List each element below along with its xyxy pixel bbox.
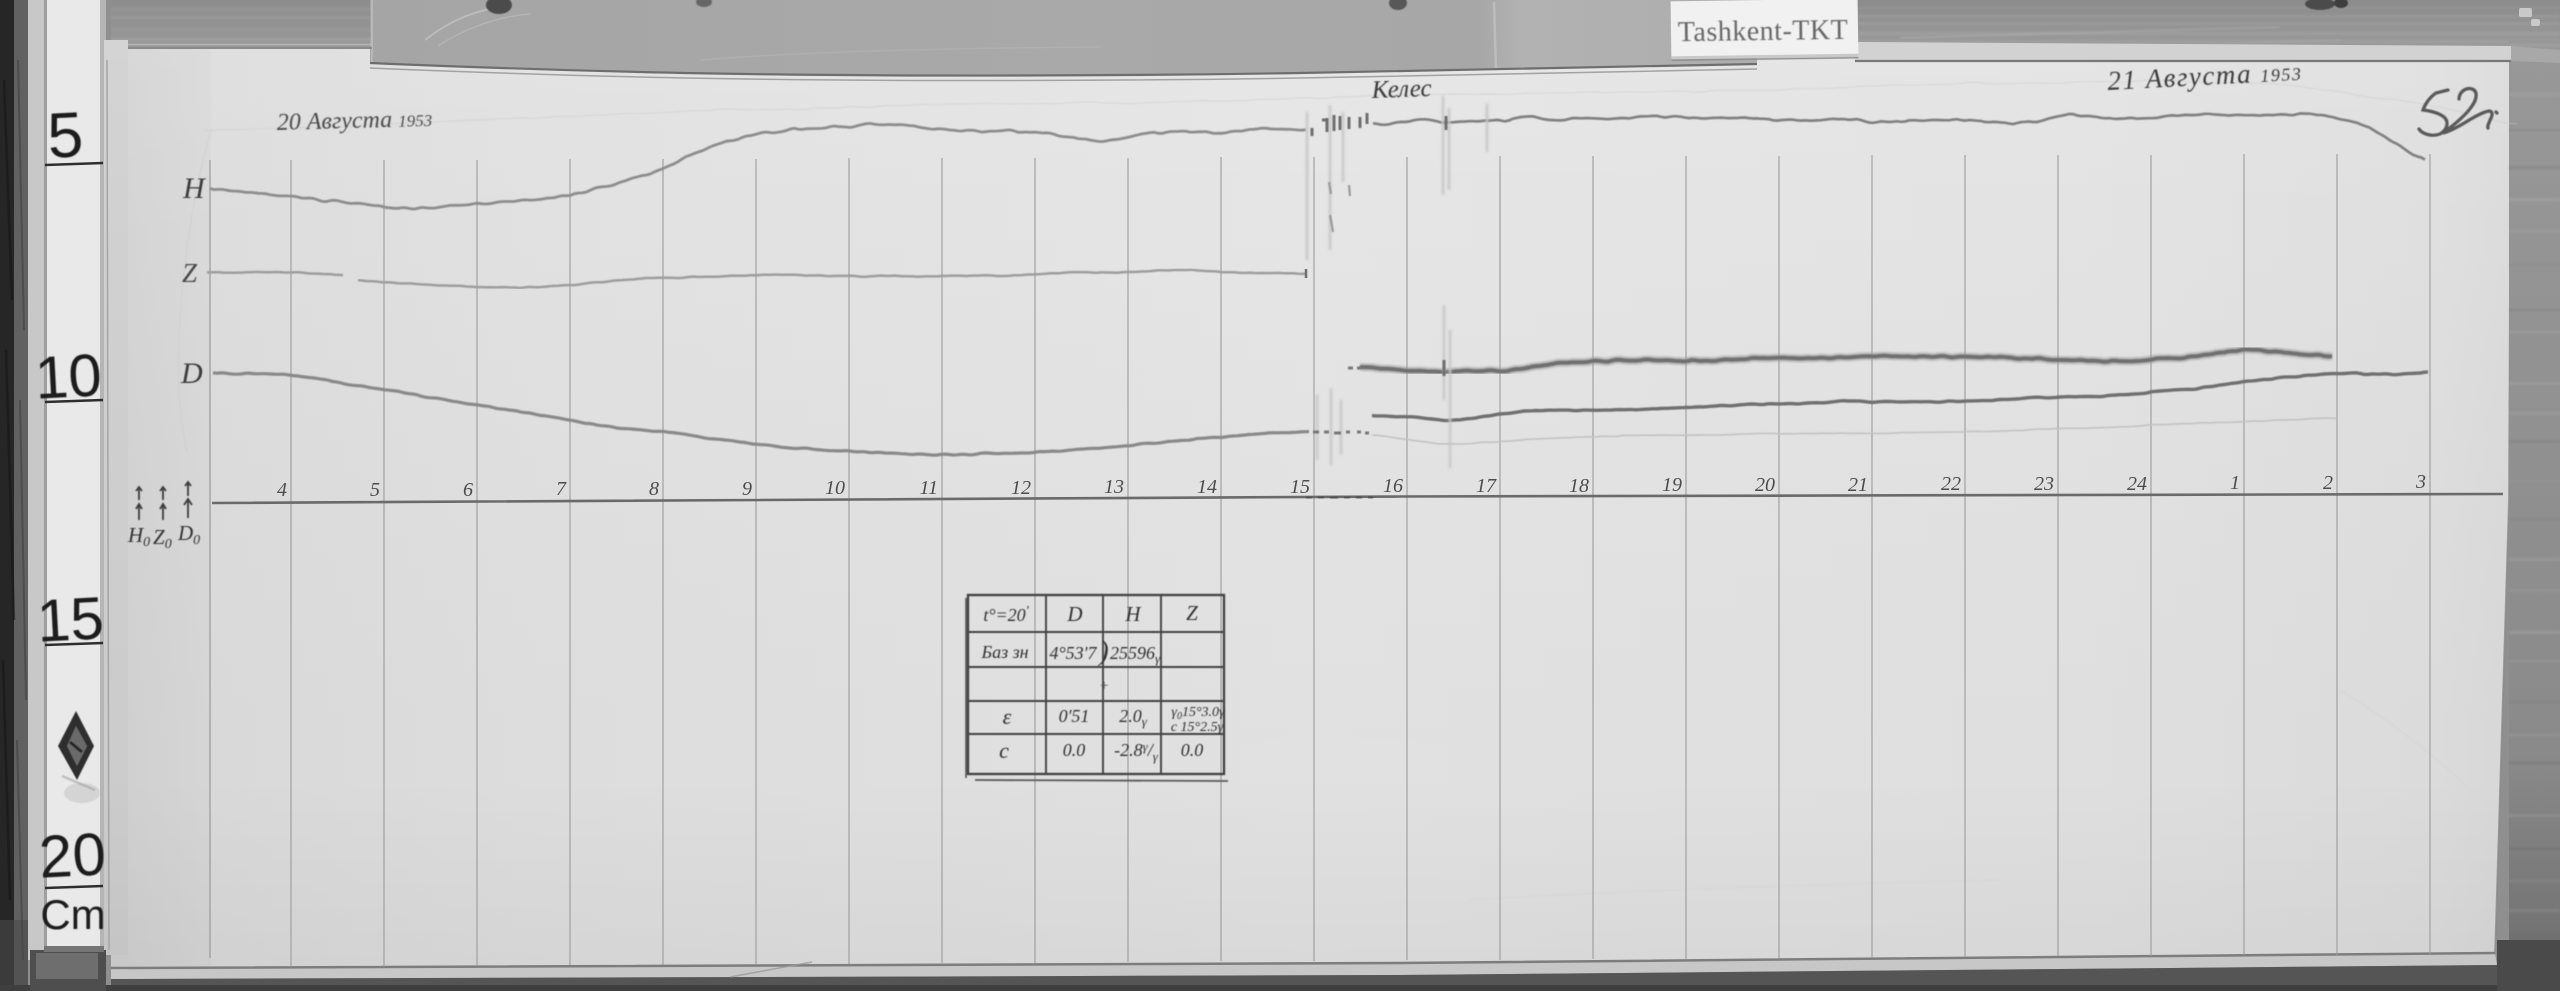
svg-text:0'51: 0'51 [1059, 706, 1090, 726]
svg-text:Баз зн: Баз зн [980, 642, 1028, 662]
svg-text:3: 3 [2415, 471, 2426, 493]
svg-text:Z: Z [182, 258, 198, 288]
svg-text:9: 9 [742, 478, 752, 500]
svg-text:2: 2 [2323, 472, 2333, 494]
svg-text:Келес: Келес [1370, 75, 1432, 104]
svg-text:12: 12 [1011, 477, 1031, 499]
svg-text:14: 14 [1197, 476, 1217, 498]
svg-text:8: 8 [649, 478, 659, 500]
svg-text:4°53'7: 4°53'7 [1049, 643, 1097, 663]
svg-text:t°=20': t°=20' [983, 604, 1029, 625]
svg-text:22: 22 [1941, 473, 1961, 495]
svg-text:4: 4 [277, 479, 287, 501]
svg-text:19: 19 [1662, 474, 1682, 496]
svg-text:Cm: Cm [40, 891, 105, 938]
svg-text:ε: ε [1003, 704, 1012, 729]
svg-text:20: 20 [37, 820, 107, 890]
svg-text:): ) [1097, 636, 1108, 667]
svg-text:H: H [182, 172, 207, 205]
svg-text:Tashkent-TKT: Tashkent-TKT [1678, 15, 1849, 48]
svg-text:18: 18 [1569, 475, 1589, 497]
svg-text:25596γ: 25596γ [1110, 643, 1161, 666]
svg-text:6: 6 [463, 479, 473, 501]
svg-text:0.0: 0.0 [1181, 740, 1204, 760]
svg-text:c 15°2.5γ: c 15°2.5γ [1171, 720, 1224, 735]
svg-text:11: 11 [919, 477, 938, 499]
svg-text:5: 5 [370, 479, 380, 501]
svg-text:+: + [1099, 678, 1109, 694]
svg-text:15: 15 [35, 584, 105, 654]
svg-text:21: 21 [1848, 474, 1868, 496]
svg-text:16: 16 [1383, 475, 1403, 497]
svg-text:17: 17 [1476, 475, 1497, 497]
svg-text:10: 10 [825, 477, 845, 499]
svg-text:20: 20 [1755, 474, 1775, 496]
svg-text:D: D [180, 357, 203, 390]
svg-text:1: 1 [2230, 472, 2240, 494]
svg-text:5: 5 [46, 98, 85, 172]
svg-text:H: H [1124, 602, 1142, 626]
svg-text:D: D [1066, 602, 1082, 626]
svg-text:15: 15 [1290, 476, 1310, 498]
svg-text:Z: Z [1186, 601, 1198, 625]
svg-text:23: 23 [2034, 473, 2054, 495]
svg-text:24: 24 [2127, 473, 2147, 495]
svg-text:c: c [999, 738, 1009, 763]
svg-text:7: 7 [556, 478, 567, 500]
svg-text:13: 13 [1104, 476, 1124, 498]
svg-text:10: 10 [33, 341, 103, 411]
svg-text:0.0: 0.0 [1063, 740, 1086, 760]
